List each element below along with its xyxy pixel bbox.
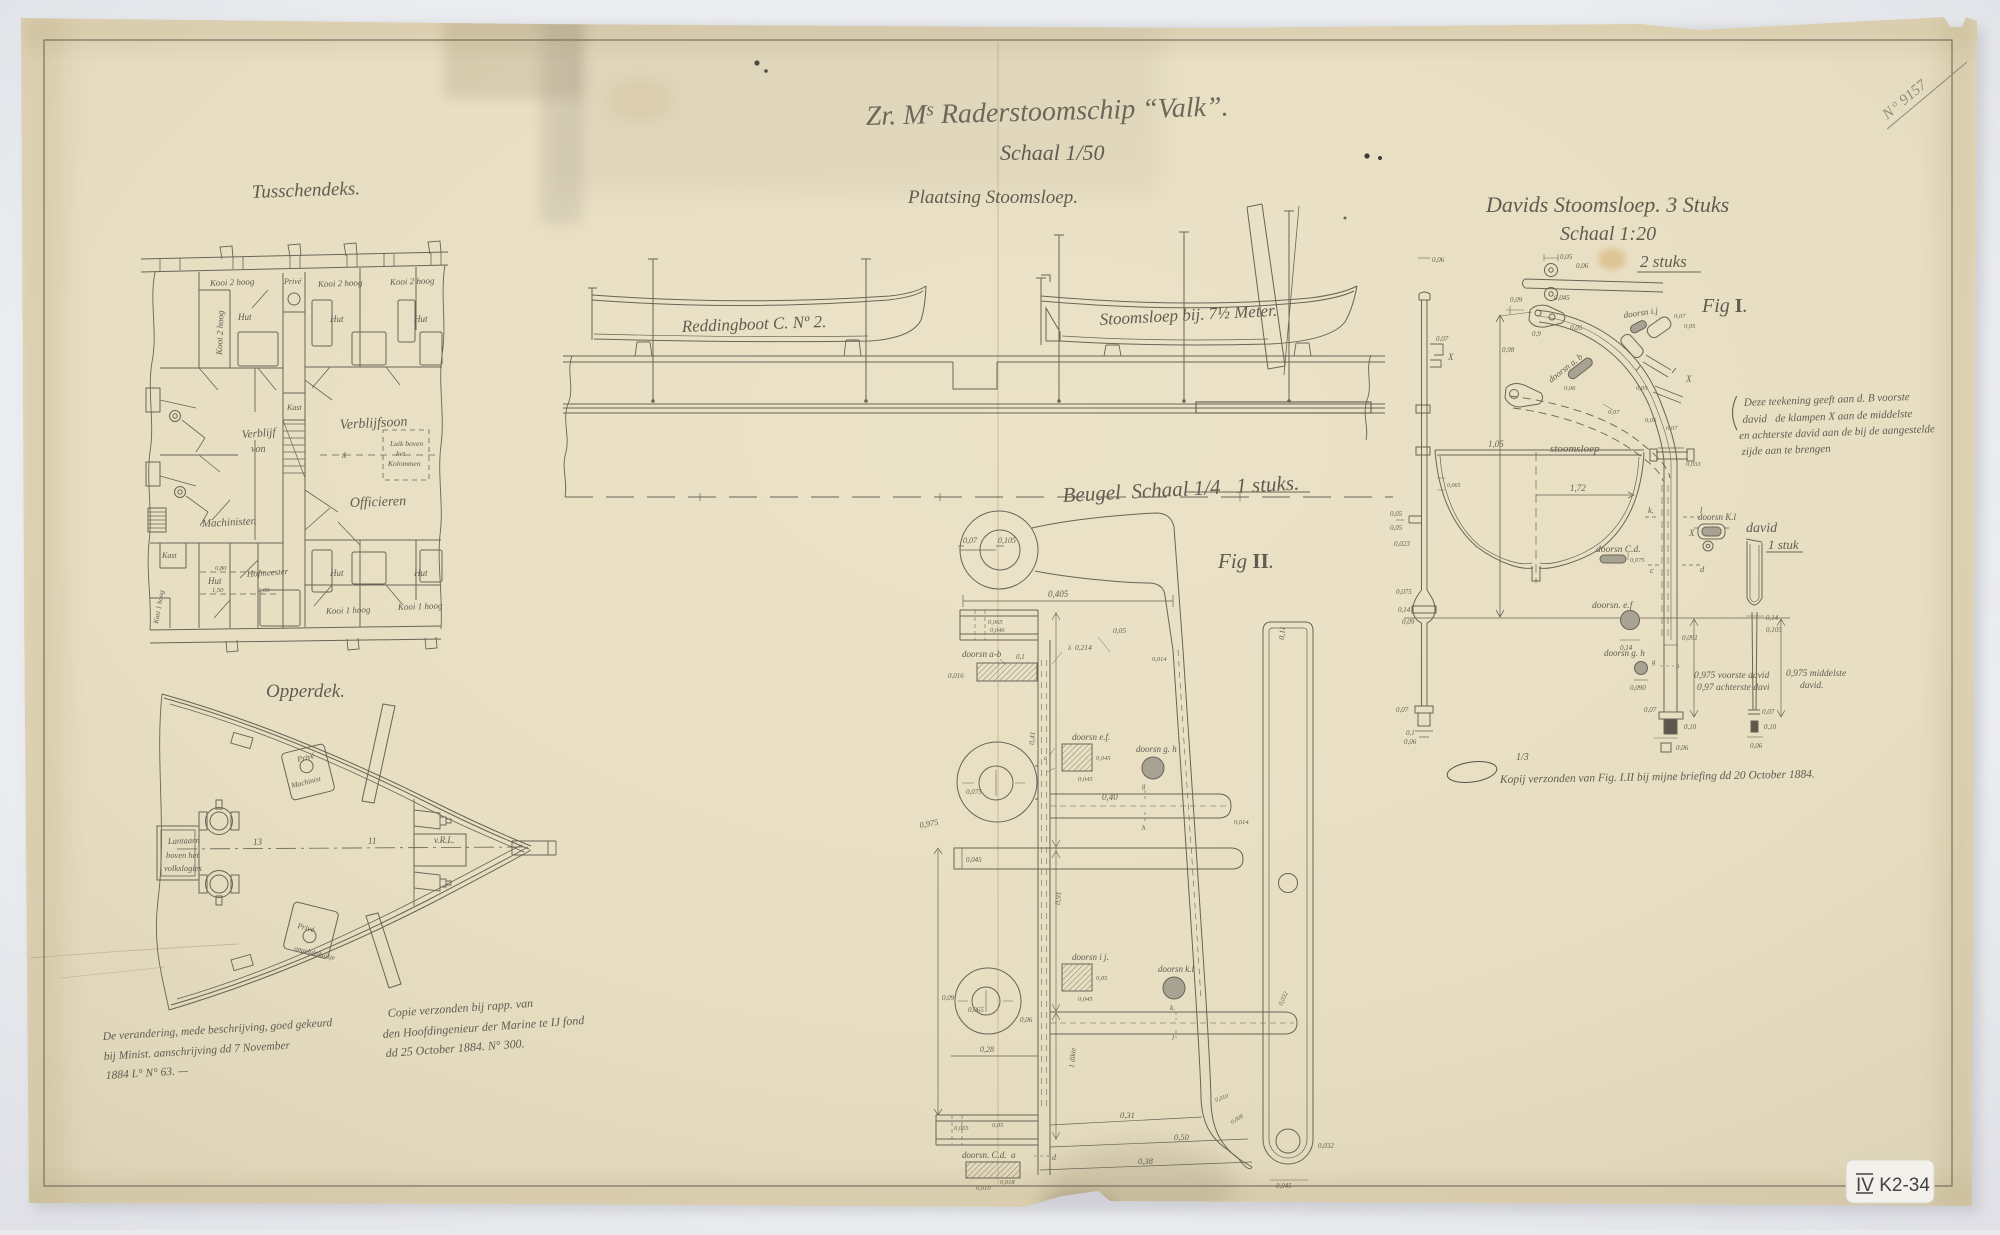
svg-text:0,065: 0,065	[988, 619, 1003, 626]
svg-text:Hut: Hut	[207, 576, 222, 586]
svg-text:Plaatsing Stoomsloep.: Plaatsing Stoomsloep.	[907, 187, 1078, 208]
svg-text:0,38: 0,38	[1138, 1156, 1154, 1166]
svg-text:0,06: 0,06	[1750, 742, 1763, 750]
svg-text:het: het	[396, 449, 406, 458]
svg-text:0,032: 0,032	[1318, 1142, 1334, 1150]
svg-text:k.: k.	[1648, 505, 1654, 515]
svg-text:Fig I.: Fig I.	[1701, 295, 1748, 317]
svg-text:0,14: 0,14	[1398, 606, 1411, 614]
svg-text:Kolommen: Kolommen	[387, 459, 421, 468]
svg-text:Schaal 1:20: Schaal 1:20	[1560, 223, 1656, 245]
svg-text:Kooi 2 hoog: Kooi 2 hoog	[389, 275, 435, 287]
svg-text:Verblijf: Verblijf	[241, 427, 277, 441]
svg-text:0,065: 0,065	[1447, 483, 1461, 489]
svg-text:0,975 voorste david: 0,975 voorste david	[1694, 671, 1769, 681]
svg-text:0,05: 0,05	[1636, 385, 1648, 392]
svg-text:0,98: 0,98	[1502, 346, 1515, 354]
svg-text:0,065: 0,065	[968, 1006, 984, 1014]
svg-text:von: von	[251, 444, 265, 455]
svg-text:doorsn i j.: doorsn i j.	[1072, 952, 1109, 962]
svg-text:0,06: 0,06	[1676, 744, 1689, 752]
svg-text:0,80: 0,80	[215, 565, 227, 572]
svg-text:doorsn e.f.: doorsn e.f.	[1072, 732, 1110, 742]
svg-text:0,07: 0,07	[963, 536, 978, 545]
svg-text:doorsn C.d.: doorsn C.d.	[1596, 545, 1641, 555]
svg-text:Luik boven: Luik boven	[389, 439, 423, 448]
svg-text:0,05: 0,05	[1560, 253, 1573, 261]
svg-text:0,14: 0,14	[1766, 614, 1779, 622]
svg-text:13: 13	[253, 837, 263, 847]
svg-text:0,05: 0,05	[1113, 626, 1126, 635]
svg-text:0,1: 0,1	[1406, 729, 1415, 737]
svg-text:doorsn k.l: doorsn k.l	[1158, 964, 1194, 974]
svg-text:0,06: 0,06	[1564, 385, 1576, 392]
svg-text:h: h	[1676, 662, 1680, 670]
svg-text:h: h	[1142, 824, 1146, 832]
svg-text:Hut: Hut	[413, 568, 428, 578]
svg-text:Kooi 2 hoog: Kooi 2 hoog	[209, 276, 255, 288]
svg-text:doorsn g. h: doorsn g. h	[1604, 648, 1645, 658]
svg-text:0,075: 0,075	[1396, 588, 1412, 596]
svg-text:0,09: 0,09	[1510, 296, 1523, 304]
svg-text:g: g	[1142, 782, 1146, 790]
svg-text:0,9: 0,9	[1532, 330, 1541, 338]
svg-text:0,045: 0,045	[1096, 755, 1111, 762]
svg-text:1 stuk: 1 stuk	[1768, 537, 1799, 552]
svg-text:0,014: 0,014	[1234, 819, 1249, 826]
svg-text:0,075: 0,075	[966, 788, 982, 796]
svg-text:Hut: Hut	[413, 314, 428, 324]
svg-text:doorsn. e.f: doorsn. e.f	[1592, 600, 1634, 611]
svg-text:v.R.L.: v.R.L.	[434, 835, 455, 845]
svg-text:0,975 middelste: 0,975 middelste	[1786, 669, 1846, 679]
svg-text:Tusschendeks.: Tusschendeks.	[251, 178, 360, 203]
svg-text:doorsn. C.d. a: doorsn. C.d. a	[962, 1150, 1016, 1160]
svg-text:0,090: 0,090	[1630, 684, 1646, 692]
svg-text:doorsn K.l: doorsn K.l	[1698, 512, 1737, 522]
svg-text:1,00: 1,00	[258, 587, 270, 594]
svg-text:0,97 achterste davi: 0,97 achterste davi	[1697, 683, 1770, 693]
svg-text:0,40: 0,40	[1102, 792, 1118, 802]
svg-text:0,016: 0,016	[948, 672, 964, 680]
svg-text:0,06: 0,06	[1576, 262, 1589, 270]
svg-text:0,045: 0,045	[1078, 776, 1093, 783]
svg-text:0,31: 0,31	[1120, 1110, 1135, 1120]
svg-text:0,05: 0,05	[1390, 510, 1403, 518]
svg-text:0,50: 0,50	[1174, 1132, 1190, 1142]
svg-text:X: X	[1685, 374, 1692, 384]
svg-text:0,045: 0,045	[966, 856, 982, 864]
svg-text:0,046: 0,046	[990, 627, 1005, 634]
svg-text:0,09: 0,09	[942, 994, 955, 1002]
svg-text:c: c	[1650, 565, 1654, 575]
svg-text:0,105: 0,105	[1766, 626, 1782, 634]
svg-text:1 dikte: 1 dikte	[1067, 1047, 1078, 1069]
svg-text:λ 0,214: λ 0,214	[1067, 643, 1092, 652]
svg-text:0,075: 0,075	[1630, 557, 1645, 564]
svg-text:Kooi 1 hoog: Kooi 1 hoog	[325, 604, 371, 616]
svg-text:k.: k.	[1170, 1003, 1175, 1012]
svg-text:Kast: Kast	[286, 403, 302, 412]
svg-text:Kooi 1 hoog: Kooi 1 hoog	[397, 600, 443, 612]
svg-text:0,06: 0,06	[1020, 1016, 1033, 1024]
svg-text:0,05: 0,05	[1096, 975, 1108, 982]
svg-text:1,50: 1,50	[212, 587, 224, 594]
svg-text:8: 8	[342, 452, 346, 460]
svg-text:0,05: 0,05	[992, 1122, 1004, 1129]
svg-text:0,07: 0,07	[1666, 425, 1678, 432]
svg-text:doorsn g. h: doorsn g. h	[1136, 744, 1177, 754]
svg-text:0,06: 0,06	[1404, 738, 1417, 746]
svg-text:0,10: 0,10	[1684, 723, 1697, 731]
svg-text:0,28: 0,28	[980, 1045, 994, 1054]
svg-text:g: g	[1652, 658, 1656, 666]
svg-text:0,010: 0,010	[976, 1185, 991, 1192]
svg-text:11: 11	[368, 836, 376, 846]
svg-text:0,09: 0,09	[1402, 618, 1415, 626]
svg-text:Kast: Kast	[161, 551, 177, 560]
svg-text:0,1: 0,1	[1016, 653, 1025, 661]
svg-text:0,11: 0,11	[1277, 626, 1287, 640]
svg-text:0,07: 0,07	[1608, 409, 1620, 416]
svg-text:Officieren: Officieren	[350, 494, 407, 511]
svg-text:0,07: 0,07	[1674, 313, 1686, 320]
svg-text:0,07: 0,07	[1762, 708, 1775, 716]
svg-text:0,045: 0,045	[1078, 996, 1093, 1003]
svg-text:Fig II.: Fig II.	[1217, 549, 1274, 573]
svg-text:e: e	[1044, 754, 1047, 762]
svg-text:Hut: Hut	[237, 312, 252, 322]
svg-text:0,06: 0,06	[1432, 256, 1445, 264]
svg-text:0,07: 0,07	[1644, 706, 1657, 714]
svg-text:0,105: 0,105	[998, 536, 1016, 545]
svg-text:1,05: 1,05	[1488, 439, 1504, 449]
svg-text:Hut: Hut	[329, 568, 344, 578]
svg-text:david: david	[1746, 521, 1778, 536]
svg-text:Hut: Hut	[329, 314, 344, 324]
svg-text:volkslogies: volkslogies	[164, 863, 202, 873]
svg-text:0,033: 0,033	[1686, 461, 1701, 468]
svg-text:0,018: 0,018	[1000, 1179, 1015, 1186]
svg-text:0,07: 0,07	[1436, 335, 1449, 343]
svg-text:X: X	[1688, 528, 1695, 538]
svg-text:david.: david.	[1800, 681, 1823, 691]
svg-text:Opperdek.: Opperdek.	[266, 681, 345, 702]
svg-text:0,014: 0,014	[1152, 656, 1167, 663]
svg-text:0,41: 0,41	[1027, 731, 1037, 745]
svg-text:Schaal 1/50: Schaal 1/50	[1000, 140, 1105, 165]
svg-text:stoomsloep: stoomsloep	[1550, 443, 1600, 455]
svg-text:0,045: 0,045	[1554, 294, 1570, 302]
svg-text:Kooi 2 hoog: Kooi 2 hoog	[214, 310, 226, 356]
svg-text:0,045: 0,045	[1276, 1182, 1292, 1190]
svg-text:0,065: 0,065	[954, 1125, 969, 1132]
svg-text:Davids Stoomsloep. 3 Stuks: Davids Stoomsloep. 3 Stuks	[1485, 192, 1729, 217]
svg-text:0,05: 0,05	[1390, 524, 1403, 532]
svg-text:0,05: 0,05	[1645, 417, 1657, 424]
svg-text:Privé: Privé	[283, 277, 302, 286]
svg-text:boven het: boven het	[166, 850, 199, 860]
svg-text:Kooi 2 hoog: Kooi 2 hoog	[317, 277, 363, 289]
svg-text:0,023: 0,023	[1394, 540, 1410, 548]
svg-text:0,405: 0,405	[1048, 589, 1069, 599]
svg-text:doorsn a-b: doorsn a-b	[962, 649, 1002, 659]
svg-text:1/3: 1/3	[1516, 752, 1529, 763]
svg-text:1,72: 1,72	[1570, 483, 1586, 493]
svg-text:0,91: 0,91	[1053, 891, 1063, 905]
svg-text:X: X	[1447, 352, 1454, 362]
svg-text:2 stuks: 2 stuks	[1640, 252, 1687, 271]
svg-text:0,10: 0,10	[1764, 723, 1777, 731]
svg-text:Lantaarn: Lantaarn	[167, 835, 200, 846]
svg-text:0,07: 0,07	[1396, 706, 1409, 714]
svg-text:0,05: 0,05	[1684, 323, 1696, 330]
svg-text:0,091: 0,091	[1682, 634, 1698, 642]
